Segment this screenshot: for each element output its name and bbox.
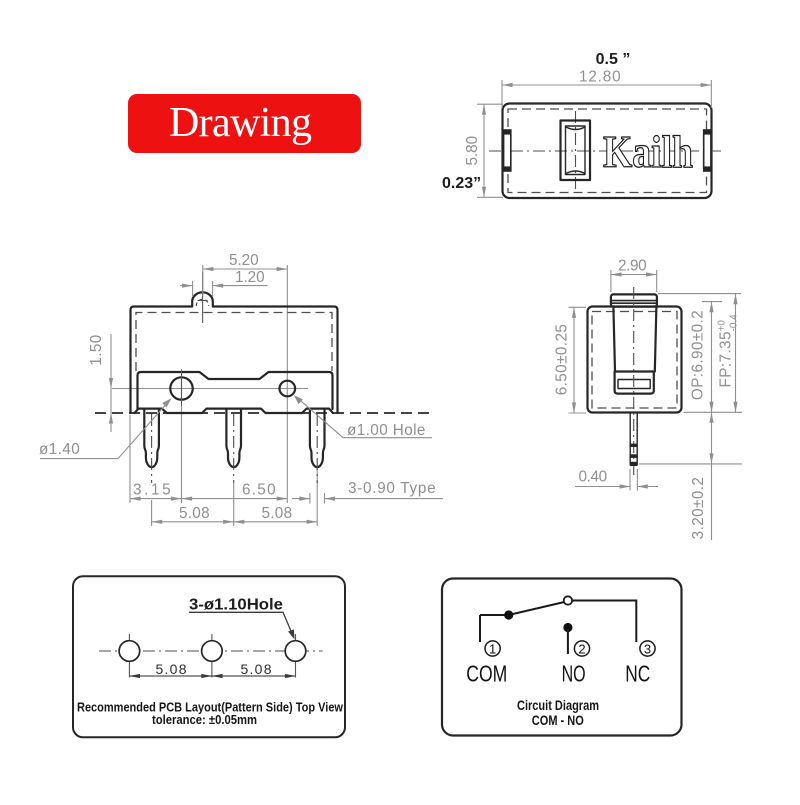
svg-text:NC: NC (625, 661, 650, 687)
svg-text:1.20: 1.20 (235, 269, 265, 286)
svg-text:ø1.00 Hole: ø1.00 Hole (347, 422, 426, 439)
svg-text:3-0.90 Type: 3-0.90 Type (348, 480, 436, 497)
svg-text:12.80: 12.80 (579, 69, 621, 86)
svg-text:3.20±0.2: 3.20±0.2 (690, 477, 707, 540)
svg-text:5.08: 5.08 (241, 661, 272, 677)
svg-text:5.08: 5.08 (179, 505, 210, 522)
svg-text:Kailh: Kailh (603, 127, 693, 177)
svg-text:0.40: 0.40 (579, 469, 608, 486)
svg-text:COM - NO: COM - NO (532, 712, 584, 728)
svg-text:0.5 ”: 0.5 ” (596, 51, 631, 68)
svg-text:3-ø1.10Hole: 3-ø1.10Hole (189, 597, 283, 614)
svg-text:5.08: 5.08 (156, 661, 187, 677)
svg-text:3: 3 (644, 641, 651, 656)
svg-text:OP:6.90±0.2: OP:6.90±0.2 (690, 310, 707, 400)
svg-text:-0.4: -0.4 (729, 314, 740, 332)
svg-text:6.50: 6.50 (242, 482, 276, 499)
svg-text:+0: +0 (717, 320, 728, 332)
svg-text:COM: COM (466, 661, 507, 687)
svg-text:1: 1 (489, 641, 496, 656)
svg-text:tolerance: ±0.05mm: tolerance: ±0.05mm (152, 713, 257, 727)
svg-text:ø1.40: ø1.40 (39, 441, 80, 458)
svg-text:2: 2 (578, 641, 585, 656)
svg-text:5.80: 5.80 (464, 136, 481, 166)
svg-text:NO: NO (562, 661, 586, 687)
svg-text:6.50±0.25: 6.50±0.25 (554, 324, 571, 396)
svg-text:5.20: 5.20 (229, 252, 259, 269)
svg-text:0.23”: 0.23” (442, 175, 481, 192)
svg-text:2.90: 2.90 (618, 258, 647, 275)
svg-text:Drawing: Drawing (169, 100, 312, 146)
svg-text:3.15: 3.15 (133, 482, 171, 499)
svg-text:5.08: 5.08 (262, 505, 293, 522)
svg-text:1.50: 1.50 (88, 334, 105, 365)
svg-text:FP:7.35: FP:7.35 (718, 331, 735, 387)
svg-text:Circuit Diagram: Circuit Diagram (517, 697, 599, 713)
